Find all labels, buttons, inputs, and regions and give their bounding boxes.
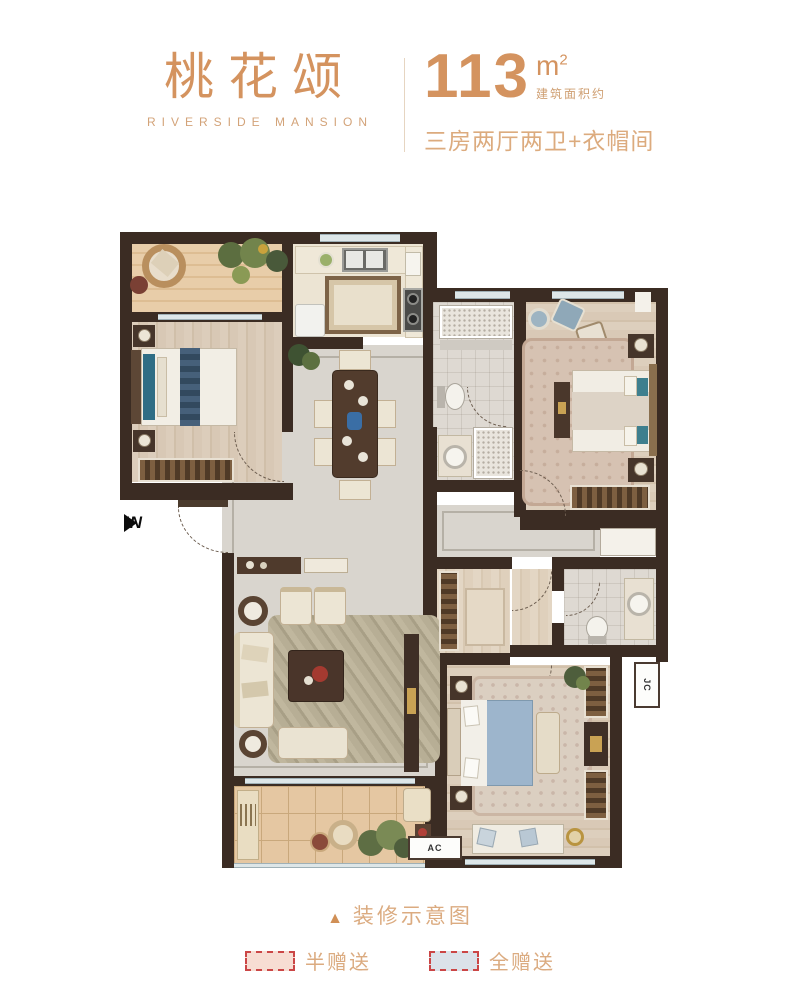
lounge-chair	[403, 788, 431, 822]
vanity-counter	[440, 340, 512, 350]
console-decor	[260, 562, 267, 569]
plate	[358, 396, 368, 406]
legend-item-half: 半赠送	[245, 946, 371, 975]
kitchen-window	[320, 234, 400, 242]
wardrobe	[584, 770, 608, 820]
bathtub	[440, 306, 512, 338]
dining-chair	[376, 438, 396, 466]
dining-chair	[339, 350, 371, 370]
shower	[474, 428, 512, 478]
plant	[576, 676, 590, 690]
wardrobe	[584, 666, 608, 718]
armchair	[280, 587, 312, 625]
plant	[266, 250, 288, 272]
sink-basin	[366, 251, 383, 268]
ac-platform: AC	[408, 836, 462, 860]
wall-bath2-north	[552, 557, 656, 569]
kitchen-rug	[325, 276, 401, 334]
seat-pillow	[519, 828, 539, 848]
area-unit-wrap: m2 建筑面积约	[536, 46, 606, 102]
bed-pillow-teal	[637, 426, 648, 444]
dining-chair	[314, 438, 334, 466]
cloakroom-rug	[465, 588, 505, 646]
bed-pillow	[463, 757, 480, 778]
side-table	[239, 730, 267, 758]
wall-bath2-west-b	[552, 623, 564, 645]
area-row: 113 m2 建筑面积约	[424, 46, 674, 108]
south-balcony-rail	[234, 863, 425, 868]
sofa-pillow	[241, 681, 268, 699]
chaise-bench	[278, 727, 348, 759]
entry-door-leaf	[178, 500, 228, 507]
bed-pillow-teal	[637, 378, 648, 396]
area-unit-exponent: 2	[559, 52, 567, 69]
wardrobe	[138, 458, 234, 482]
area-note: 建筑面积约	[536, 85, 606, 102]
entrance-marker: IN	[124, 514, 137, 532]
balcony-door-glass	[245, 778, 415, 784]
wall-corridor-south	[437, 557, 512, 569]
round-basin	[443, 445, 467, 469]
lamp	[138, 329, 151, 342]
bed-throw	[572, 392, 650, 430]
dish	[318, 252, 334, 268]
plant	[302, 352, 320, 370]
master-wardrobe	[570, 485, 650, 510]
legend-label-half: 半赠送	[305, 946, 371, 975]
bath1-window	[455, 291, 510, 299]
side-table	[238, 596, 268, 626]
round-basin	[627, 592, 651, 616]
balcony-side-table	[130, 276, 148, 294]
triangle-icon: ▲	[327, 910, 343, 927]
armchair	[314, 587, 346, 625]
plate	[358, 452, 368, 462]
table-flowers	[312, 666, 328, 682]
dining-chair	[314, 400, 334, 428]
project-subtitle: RIVERSIDE MANSION	[120, 115, 400, 129]
wall-bath2-west-a	[552, 569, 564, 591]
foot-bench	[536, 712, 560, 774]
entry-door-arc	[178, 507, 228, 553]
counter-appliance	[405, 252, 421, 276]
seat-pillow	[476, 827, 496, 847]
tv	[407, 688, 416, 714]
round-chair	[328, 820, 358, 850]
lamp	[455, 790, 468, 803]
stool	[310, 832, 330, 852]
east-bay-window	[600, 528, 656, 556]
floor-plan: IN AC JC	[120, 230, 690, 870]
bedroom3-window	[465, 859, 595, 865]
bed-headboard	[447, 708, 461, 776]
bed-pillow	[463, 705, 480, 726]
lamp	[138, 434, 151, 447]
caption-text: 装修示意图	[353, 905, 473, 928]
wall-bedroom3-north	[447, 653, 510, 665]
centerpiece	[347, 412, 362, 430]
gold-tray	[566, 828, 584, 846]
bed-pillow	[624, 426, 637, 446]
toilet	[445, 383, 465, 410]
balcony-slider-glass	[158, 314, 262, 320]
lamp	[634, 338, 648, 352]
unit-info-block: 113 m2 建筑面积约 三房两厅两卫+衣帽间	[424, 46, 674, 156]
corner-niche	[635, 292, 651, 312]
lamp	[455, 680, 468, 693]
entrance-label: IN	[124, 513, 143, 533]
tv	[590, 736, 602, 752]
layout-description: 三房两厅两卫+衣帽间	[424, 122, 674, 156]
bed-pillow	[624, 376, 637, 396]
tv	[558, 402, 566, 414]
wall-bath2-south	[510, 645, 668, 657]
bench-tray	[304, 558, 348, 573]
floorplan-page: 桃花颂 RIVERSIDE MANSION 113 m2 建筑面积约 三房两厅两…	[0, 0, 800, 1006]
fridge	[295, 304, 325, 337]
bed-headboard	[649, 364, 657, 456]
legend-swatch-full	[429, 951, 479, 971]
wall-east	[656, 288, 668, 662]
area-unit-base: m	[536, 50, 559, 81]
wall-bath1-west	[423, 300, 433, 430]
wall-bedroom-south	[120, 483, 293, 500]
burner	[407, 313, 419, 325]
tea-table	[528, 308, 550, 330]
toilet-tank	[588, 636, 606, 644]
wall-bath1-south	[423, 480, 524, 492]
burner	[407, 293, 419, 305]
legend-swatch-half	[245, 951, 295, 971]
legend-row: 半赠送 全赠送	[0, 946, 800, 975]
console-decor	[246, 561, 254, 569]
flower	[258, 244, 268, 254]
area-unit: m2	[536, 50, 568, 81]
sink-basin	[346, 251, 363, 268]
drying-rack	[240, 804, 256, 826]
plant	[232, 266, 250, 284]
bed-headboard	[131, 350, 141, 424]
wall-bedroom3-east	[610, 653, 622, 868]
caption-row: ▲装修示意图	[0, 900, 800, 930]
toilet-tank	[437, 386, 445, 408]
lamp	[634, 462, 648, 476]
title-block: 桃花颂 RIVERSIDE MANSION	[120, 50, 400, 129]
cloakroom-wardrobe	[439, 571, 459, 651]
header-divider	[404, 58, 405, 152]
ac-platform-label: AC	[428, 843, 443, 853]
legend-item-full: 全赠送	[429, 946, 555, 975]
legend-label-full: 全赠送	[489, 946, 555, 975]
project-title: 桃花颂	[120, 50, 400, 105]
side-ac-platform: JC	[634, 662, 660, 708]
side-ac-platform-label: JC	[642, 678, 652, 692]
plate	[342, 436, 352, 446]
dining-chair	[339, 480, 371, 500]
area-value: 113	[424, 46, 530, 108]
plate	[344, 380, 354, 390]
dining-chair	[376, 400, 396, 428]
bed-pillow-blue	[143, 354, 155, 420]
bed-pillow	[157, 357, 167, 417]
bed-runner	[180, 348, 200, 426]
table-decor	[304, 676, 313, 685]
wall-living-west	[222, 553, 234, 868]
